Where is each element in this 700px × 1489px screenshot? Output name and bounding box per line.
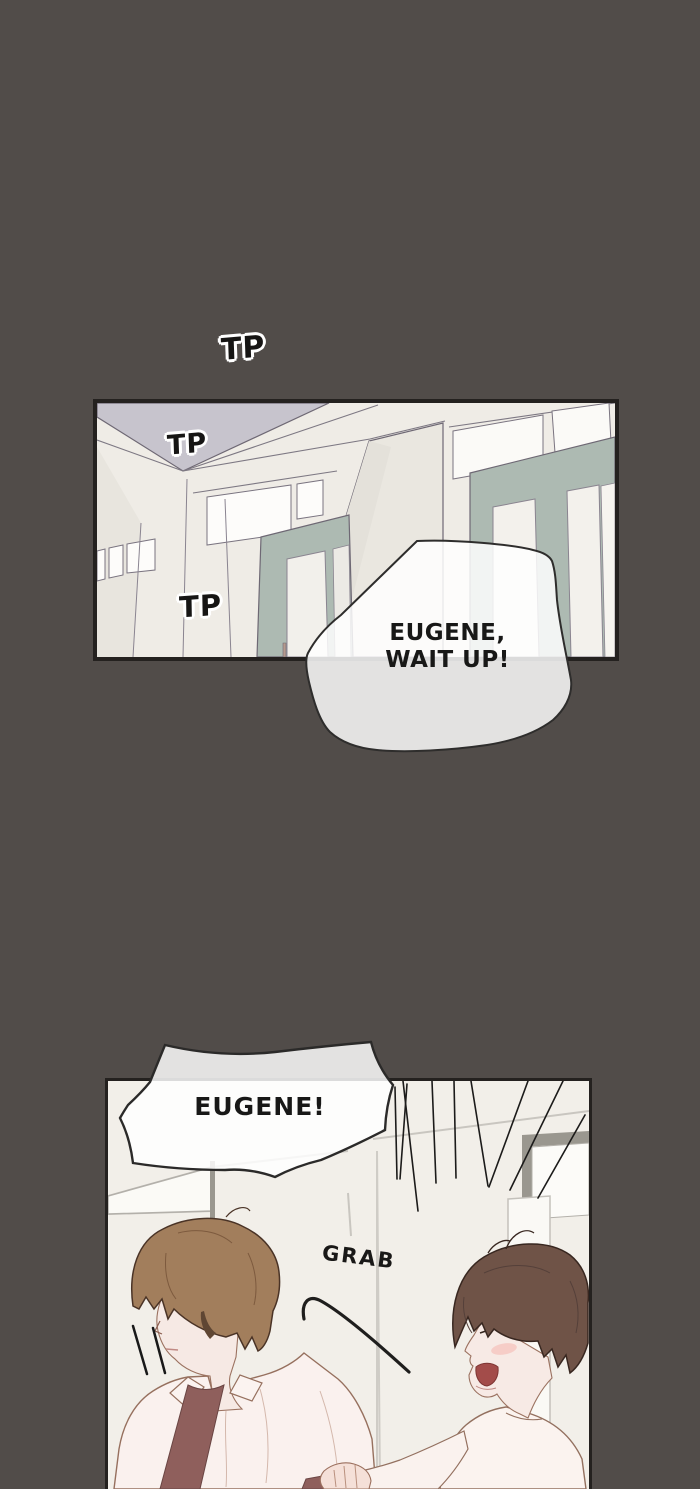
sfx-tp-wall: TP <box>179 587 223 624</box>
speech-line: WAIT UP! <box>340 647 555 674</box>
sfx-tp-top: TP <box>220 329 266 368</box>
speech-bubble-eugene: EUGENE! <box>110 1034 410 1194</box>
speech-text-wait-up: EUGENE, WAIT UP! <box>340 620 555 674</box>
sfx-tp-ceiling: TP <box>167 427 208 462</box>
speech-line: EUGENE, <box>340 620 555 647</box>
speech-text-eugene: EUGENE! <box>160 1092 360 1122</box>
speech-bubble-wait-up: EUGENE, WAIT UP! <box>300 530 585 762</box>
comic-page: TP <box>0 0 700 1489</box>
